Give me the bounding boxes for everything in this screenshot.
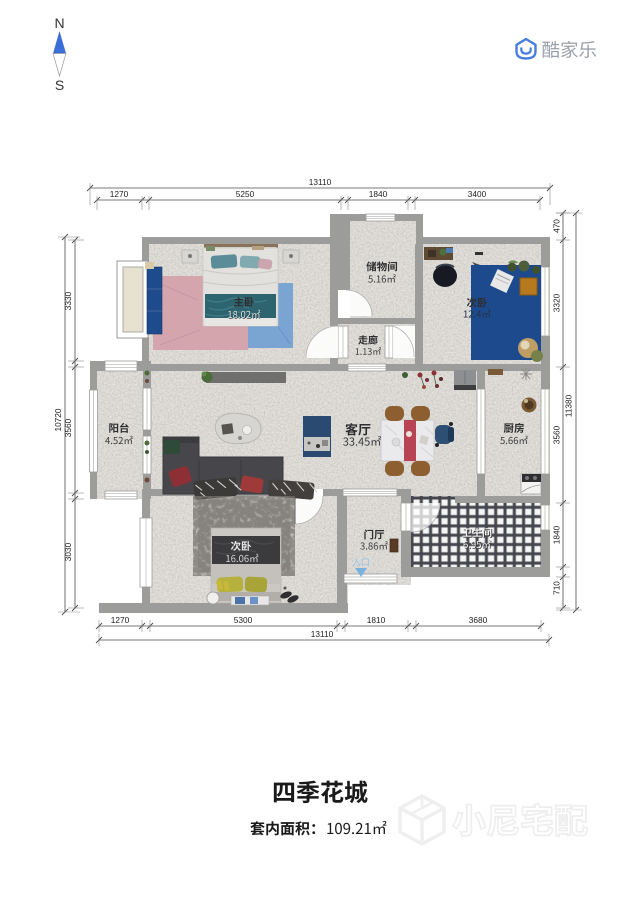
svg-text:S: S: [55, 77, 64, 93]
svg-text:470: 470: [552, 219, 562, 233]
svg-text:N: N: [54, 15, 64, 31]
svg-text:1810: 1810: [367, 615, 386, 625]
svg-text:710: 710: [552, 581, 562, 595]
svg-text:3320: 3320: [552, 293, 562, 312]
svg-text:1840: 1840: [552, 525, 562, 544]
svg-text:3400: 3400: [468, 189, 487, 199]
svg-text:1270: 1270: [110, 189, 129, 199]
svg-text:13110: 13110: [311, 629, 334, 639]
svg-text:10720: 10720: [53, 408, 63, 431]
svg-text:13110: 13110: [309, 177, 332, 187]
svg-text:1270: 1270: [111, 615, 130, 625]
svg-text:5250: 5250: [236, 189, 255, 199]
svg-text:3330: 3330: [63, 291, 73, 310]
svg-text:3560: 3560: [63, 418, 73, 437]
svg-text:3030: 3030: [63, 542, 73, 561]
svg-text:1840: 1840: [369, 189, 388, 199]
svg-text:11380: 11380: [564, 394, 574, 417]
svg-text:3680: 3680: [469, 615, 488, 625]
svg-text:5300: 5300: [234, 615, 253, 625]
svg-text:3560: 3560: [552, 425, 562, 444]
